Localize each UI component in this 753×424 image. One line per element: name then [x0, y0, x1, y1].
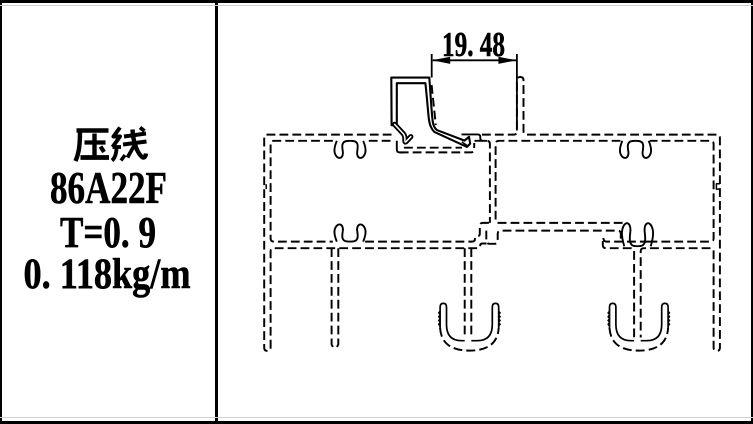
svg-text:0. 118kg/m: 0. 118kg/m	[24, 251, 191, 298]
svg-text:19. 48: 19. 48	[442, 26, 505, 64]
svg-text:86A22F: 86A22F	[50, 162, 167, 213]
svg-text:T=0. 9: T=0. 9	[60, 208, 156, 257]
